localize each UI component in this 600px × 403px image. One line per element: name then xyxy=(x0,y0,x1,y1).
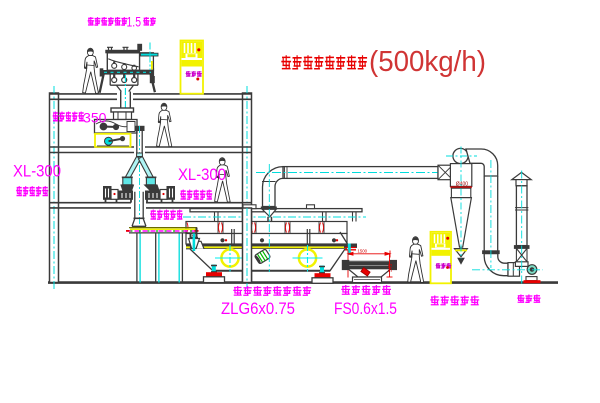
svg-text:XL-300: XL-300 xyxy=(13,163,61,181)
svg-text:XL-300: XL-300 xyxy=(178,166,226,184)
svg-text:1.5: 1.5 xyxy=(127,14,142,30)
svg-text:ZLG6x0.75: ZLG6x0.75 xyxy=(221,299,295,318)
svg-text:FS0.6x1.5: FS0.6x1.5 xyxy=(334,299,397,318)
svg-text:1500: 1500 xyxy=(358,248,368,253)
svg-text:Ø400: Ø400 xyxy=(456,181,468,187)
svg-text:(500kg/h): (500kg/h) xyxy=(369,46,486,78)
svg-text:350: 350 xyxy=(83,110,107,126)
svg-text:545: 545 xyxy=(388,263,394,272)
